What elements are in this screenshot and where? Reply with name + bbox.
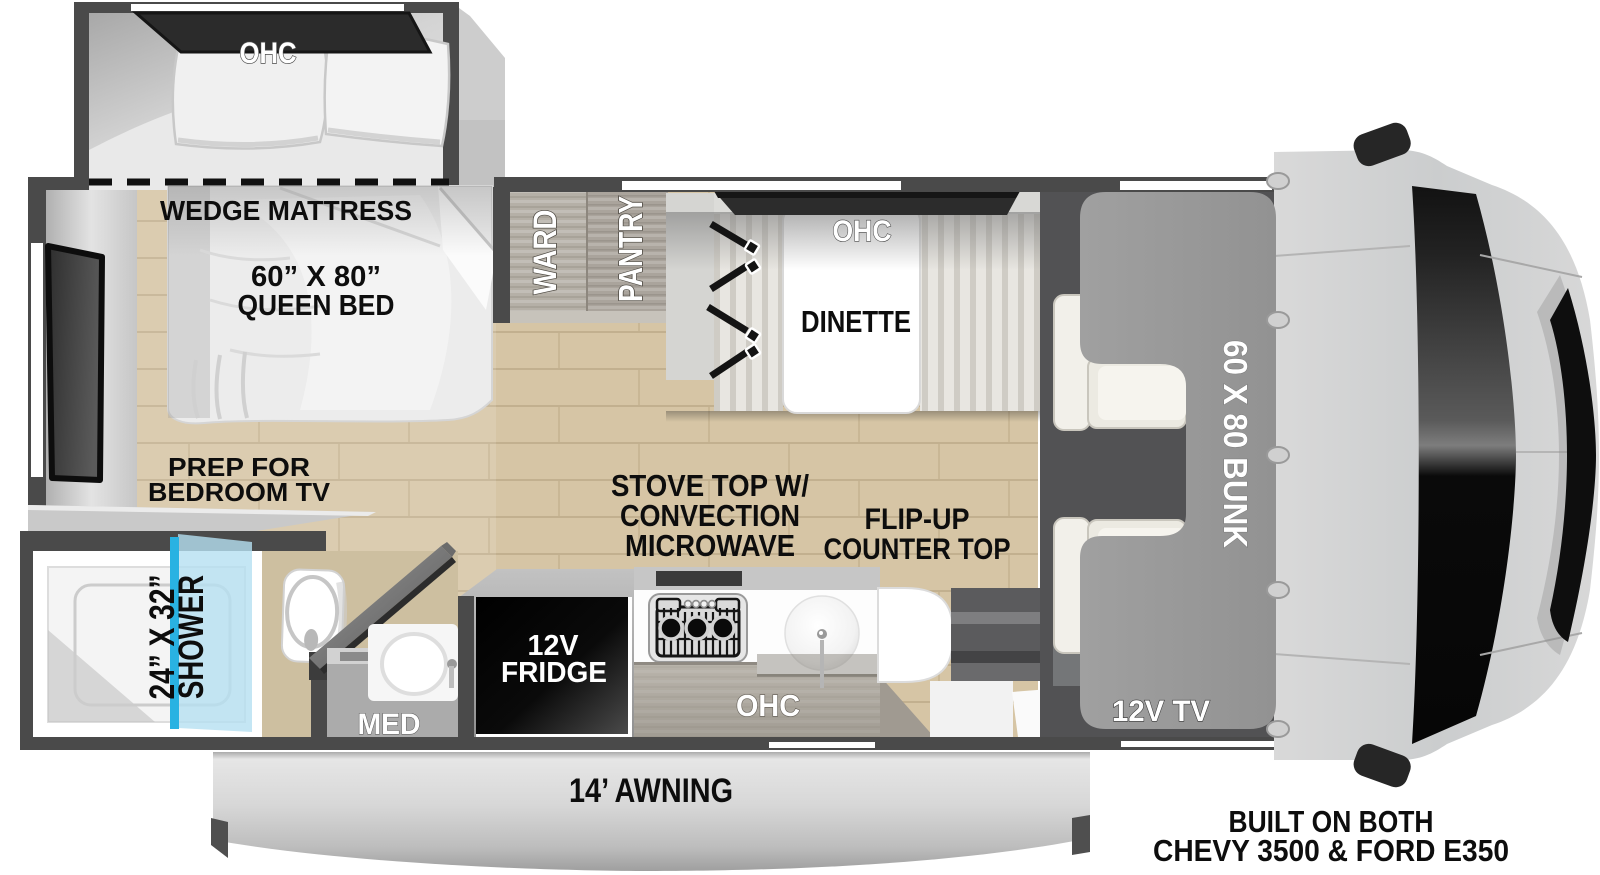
svg-text:BEDROOM TV: BEDROOM TV	[148, 477, 331, 507]
svg-text:MED: MED	[358, 708, 421, 741]
svg-text:WARD: WARD	[527, 210, 563, 295]
svg-text:CHEVY 3500 & FORD E350: CHEVY 3500 & FORD E350	[1153, 833, 1509, 868]
svg-text:FRIDGE: FRIDGE	[501, 657, 607, 689]
svg-text:FLIP-UP: FLIP-UP	[865, 503, 970, 536]
svg-text:PANTRY: PANTRY	[612, 196, 649, 302]
svg-text:OHC: OHC	[833, 215, 892, 248]
svg-text:SHOWER: SHOWER	[172, 575, 211, 699]
svg-text:OHC: OHC	[736, 688, 800, 723]
svg-text:QUEEN BED: QUEEN BED	[238, 290, 395, 322]
svg-text:DINETTE: DINETTE	[801, 304, 911, 339]
svg-text:WEDGE MATTRESS: WEDGE MATTRESS	[160, 195, 412, 226]
svg-text:MICROWAVE: MICROWAVE	[625, 528, 795, 563]
svg-text:OHC: OHC	[240, 37, 297, 70]
svg-text:60” X 80”: 60” X 80”	[251, 261, 381, 293]
svg-text:COUNTER TOP: COUNTER TOP	[824, 533, 1011, 566]
svg-text:14’ AWNING: 14’ AWNING	[569, 772, 733, 810]
svg-text:60 X 80 BUNK: 60 X 80 BUNK	[1217, 340, 1254, 548]
svg-text:12V TV: 12V TV	[1112, 695, 1210, 728]
